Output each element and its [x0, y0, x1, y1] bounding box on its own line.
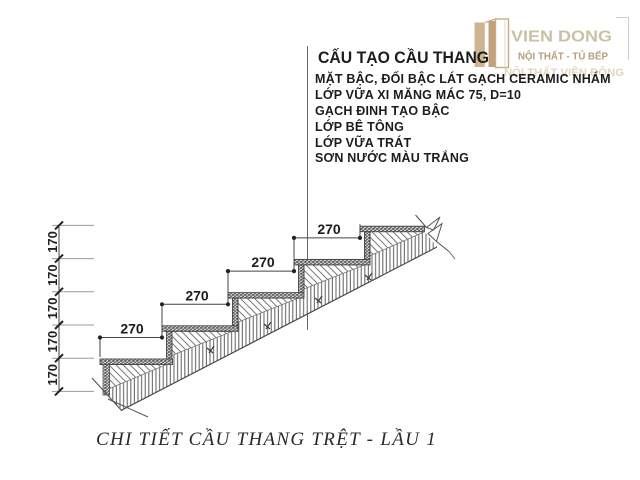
svg-text:170: 170 — [45, 298, 60, 320]
svg-text:VIEN DONG: VIEN DONG — [511, 29, 612, 46]
svg-text:270: 270 — [185, 287, 209, 303]
svg-text:LỚP BÊ TÔNG: LỚP BÊ TÔNG — [315, 119, 404, 134]
svg-text:170: 170 — [45, 364, 60, 386]
svg-text:270: 270 — [120, 321, 144, 337]
svg-text:MẶT BẬC, ĐỐI BẬC LÁT GẠCH CERA: MẶT BẬC, ĐỐI BẬC LÁT GẠCH CERAMIC NHÁM — [315, 71, 611, 86]
svg-text:270: 270 — [251, 254, 275, 270]
svg-text:LỚP VỮA XI MĂNG MÁC 75, D=10: LỚP VỮA XI MĂNG MÁC 75, D=10 — [315, 87, 521, 102]
svg-text:170: 170 — [45, 231, 60, 253]
svg-text:NỘI THẤT - TỦ BẾP: NỘI THẤT - TỦ BẾP — [518, 50, 608, 63]
svg-text:CHI TIẾT CẦU THANG TRỆT - LẦU: CHI TIẾT CẦU THANG TRỆT - LẦU 1 — [96, 428, 437, 450]
svg-text:170: 170 — [45, 264, 60, 286]
svg-text:GẠCH ĐINH TẠO BẬC: GẠCH ĐINH TẠO BẬC — [315, 103, 450, 118]
svg-text:170: 170 — [45, 331, 60, 353]
svg-text:LỚP VỮA TRÁT: LỚP VỮA TRÁT — [315, 135, 412, 150]
svg-text:270: 270 — [317, 221, 341, 237]
svg-text:CẤU TẠO CẦU THANG: CẤU TẠO CẦU THANG — [318, 48, 489, 67]
svg-text:SƠN NƯỚC MÀU TRẮNG: SƠN NƯỚC MÀU TRẮNG — [315, 150, 469, 165]
